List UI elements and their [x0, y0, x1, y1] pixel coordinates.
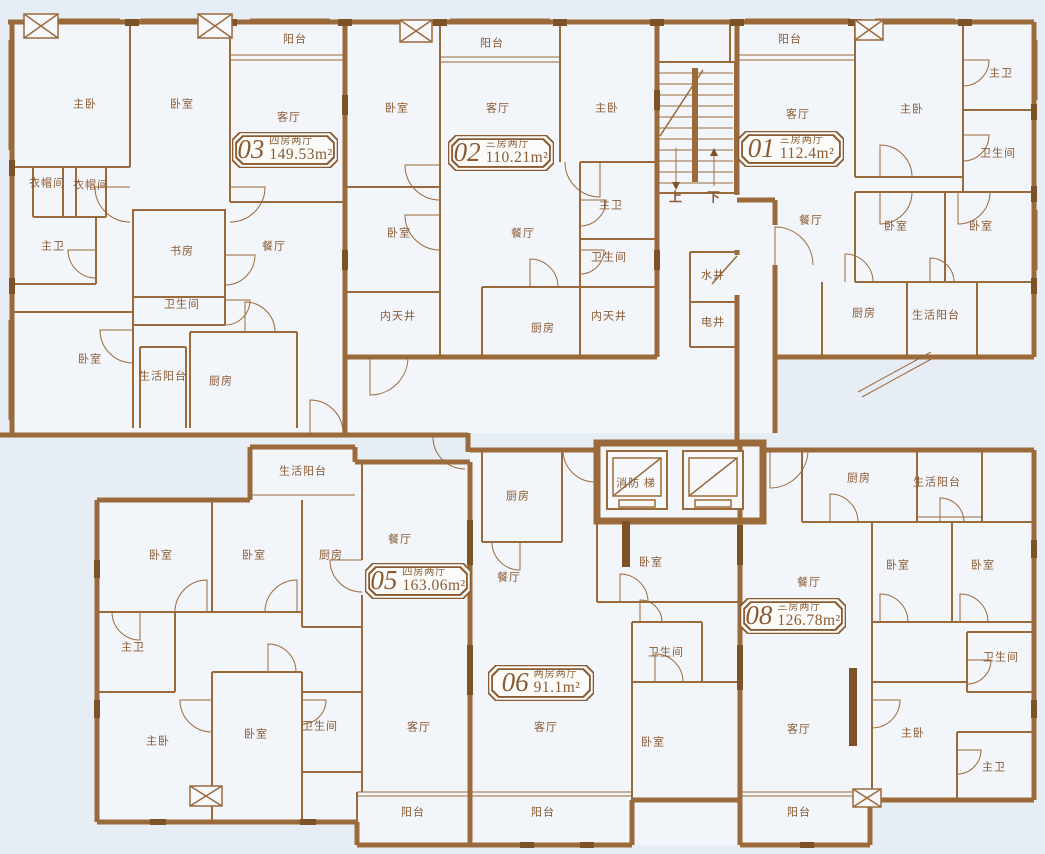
room-label: 卧室 [78, 355, 102, 366]
room-label: 内天井 [591, 312, 627, 323]
floor-plan-walls [0, 0, 1045, 854]
room-label: 卫生间 [980, 149, 1016, 160]
room-label: 卧室 [971, 561, 995, 572]
room-label: 客厅 [786, 110, 810, 121]
unit-area: 126.78m² [777, 613, 840, 629]
unit-area: 163.06m² [402, 578, 465, 594]
unit-number: 03 [237, 136, 264, 163]
room-label: 内天井 [380, 312, 416, 323]
unit-area: 112.4m² [780, 146, 835, 162]
room-label: 阳台 [283, 35, 307, 46]
room-label: 卧室 [242, 551, 266, 562]
room-label: 卧室 [886, 561, 910, 572]
unit-area: 91.1m² [534, 680, 581, 696]
room-label: 下 [707, 191, 721, 204]
room-label: 厨房 [506, 492, 530, 503]
room-label: 餐厅 [497, 573, 521, 584]
room-label: 主卧 [595, 104, 619, 115]
room-label: 餐厅 [388, 535, 412, 546]
room-label: 上 [669, 191, 683, 204]
room-label: 电井 [701, 318, 725, 329]
room-label: 生活阳台 [139, 372, 187, 383]
room-label: 书房 [170, 247, 194, 258]
room-label: 卫生间 [983, 653, 1019, 664]
room-label: 阳台 [778, 35, 802, 46]
room-label: 消防 梯 [616, 479, 656, 490]
room-label: 阳台 [787, 808, 811, 819]
room-label: 生活阳台 [279, 467, 327, 478]
room-label: 主卫 [599, 201, 623, 212]
room-label: 阳台 [480, 39, 504, 50]
room-label: 卧室 [170, 100, 194, 111]
room-label: 厨房 [319, 551, 343, 562]
room-label: 水井 [701, 271, 725, 282]
unit-area: 149.53m² [269, 147, 332, 163]
room-label: 卧室 [149, 551, 173, 562]
room-label: 卧室 [387, 229, 411, 240]
unit-badge-06: 06 两房两厅 91.1m² [488, 665, 594, 701]
room-label: 主卫 [41, 242, 65, 253]
unit-badge-03: 03 四房两厅 149.53m² [232, 132, 338, 168]
room-label: 主卫 [982, 763, 1006, 774]
room-label: 客厅 [486, 104, 510, 115]
room-label: 卫生间 [302, 722, 338, 733]
room-label: 主卧 [900, 105, 924, 116]
room-label: 客厅 [534, 723, 558, 734]
room-label: 主卧 [146, 737, 170, 748]
unit-badge-01: 01 三房两厅 112.4m² [738, 131, 844, 167]
room-label: 生活阳台 [912, 311, 960, 322]
room-label: 卧室 [244, 730, 268, 741]
room-label: 厨房 [209, 377, 233, 388]
room-label: 卫生间 [164, 300, 200, 311]
unit-badge-05: 05 四房两厅 163.06m² [365, 563, 471, 599]
room-label: 阳台 [531, 808, 555, 819]
room-label: 客厅 [787, 725, 811, 736]
unit-badge-02: 02 三房两厅 110.21m² [448, 135, 554, 171]
room-label: 客厅 [277, 113, 301, 124]
room-label: 餐厅 [797, 578, 821, 589]
floor-plan-canvas: 阳台 主卧 卧室 客厅 衣帽间 衣帽间 主卫 书房 餐厅 卫生间 卧室 生活阳台… [0, 0, 1045, 854]
room-label: 卧室 [639, 558, 663, 569]
room-label: 卧室 [641, 738, 665, 749]
room-label: 卧室 [969, 222, 993, 233]
room-label: 卫生间 [648, 648, 684, 659]
room-label: 主卫 [989, 69, 1013, 80]
room-label: 厨房 [531, 324, 555, 335]
room-label: 衣帽间 [29, 179, 65, 190]
room-label: 主卫 [121, 643, 145, 654]
room-label: 餐厅 [511, 229, 535, 240]
unit-number: 02 [454, 139, 481, 166]
room-label: 阳台 [401, 808, 425, 819]
room-label: 餐厅 [262, 242, 286, 253]
room-label: 餐厅 [799, 216, 823, 227]
room-label: 厨房 [852, 309, 876, 320]
room-label: 卧室 [884, 222, 908, 233]
unit-number: 08 [745, 602, 772, 629]
unit-number: 06 [502, 669, 529, 696]
unit-number: 01 [748, 135, 775, 162]
room-label: 卧室 [385, 104, 409, 115]
unit-area: 110.21m² [486, 150, 549, 166]
unit-badge-08: 08 三房两厅 126.78m² [740, 598, 846, 634]
room-label: 衣帽间 [73, 181, 109, 192]
room-label: 厨房 [847, 474, 871, 485]
unit-number: 05 [370, 567, 397, 594]
room-label: 主卧 [901, 729, 925, 740]
room-label: 主卧 [73, 100, 97, 111]
room-label: 卫生间 [591, 253, 627, 264]
room-label: 客厅 [407, 723, 431, 734]
room-label: 生活阳台 [913, 478, 961, 489]
